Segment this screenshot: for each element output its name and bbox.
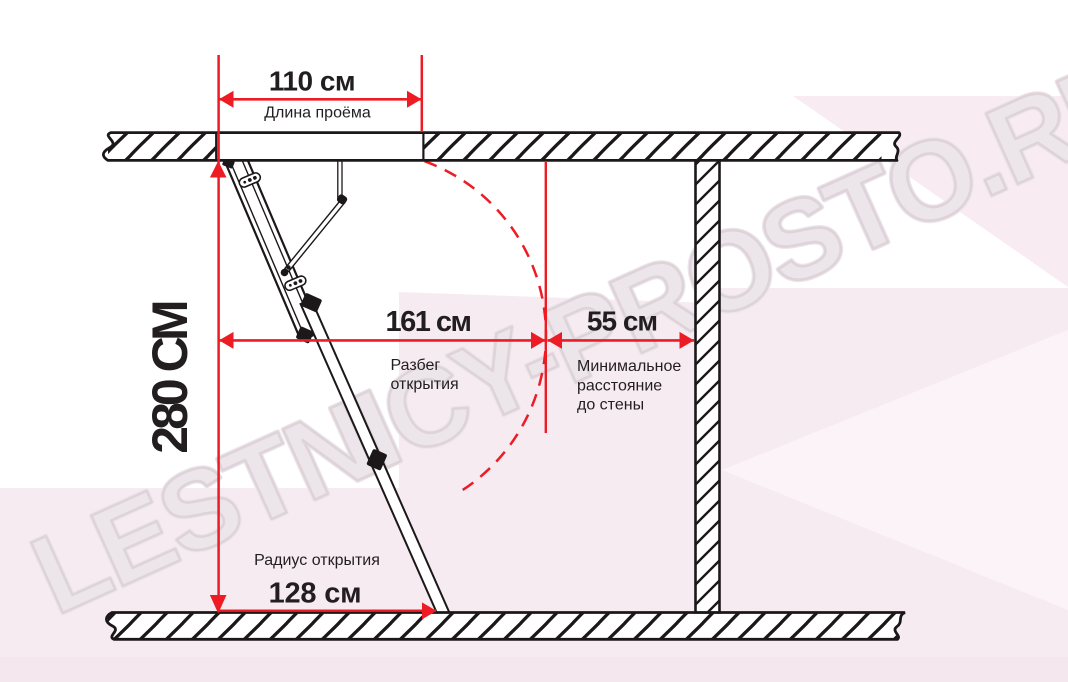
svg-text:Длина проёма: Длина проёма bbox=[264, 105, 371, 122]
svg-text:расстояние: расстояние bbox=[577, 378, 662, 395]
svg-text:55 см: 55 см bbox=[587, 306, 657, 337]
svg-text:Минимальное: Минимальное bbox=[577, 358, 681, 375]
svg-text:128 см: 128 см bbox=[269, 578, 362, 610]
svg-text:161 см: 161 см bbox=[385, 306, 470, 338]
svg-text:Разбег: Разбег bbox=[391, 357, 441, 374]
svg-text:110 см: 110 см bbox=[269, 66, 355, 97]
svg-text:открытия: открытия bbox=[391, 376, 459, 393]
svg-text:Радиус открытия: Радиус открытия bbox=[254, 552, 380, 569]
svg-text:280 СМ: 280 СМ bbox=[142, 302, 198, 454]
svg-text:до стены: до стены bbox=[577, 397, 644, 414]
